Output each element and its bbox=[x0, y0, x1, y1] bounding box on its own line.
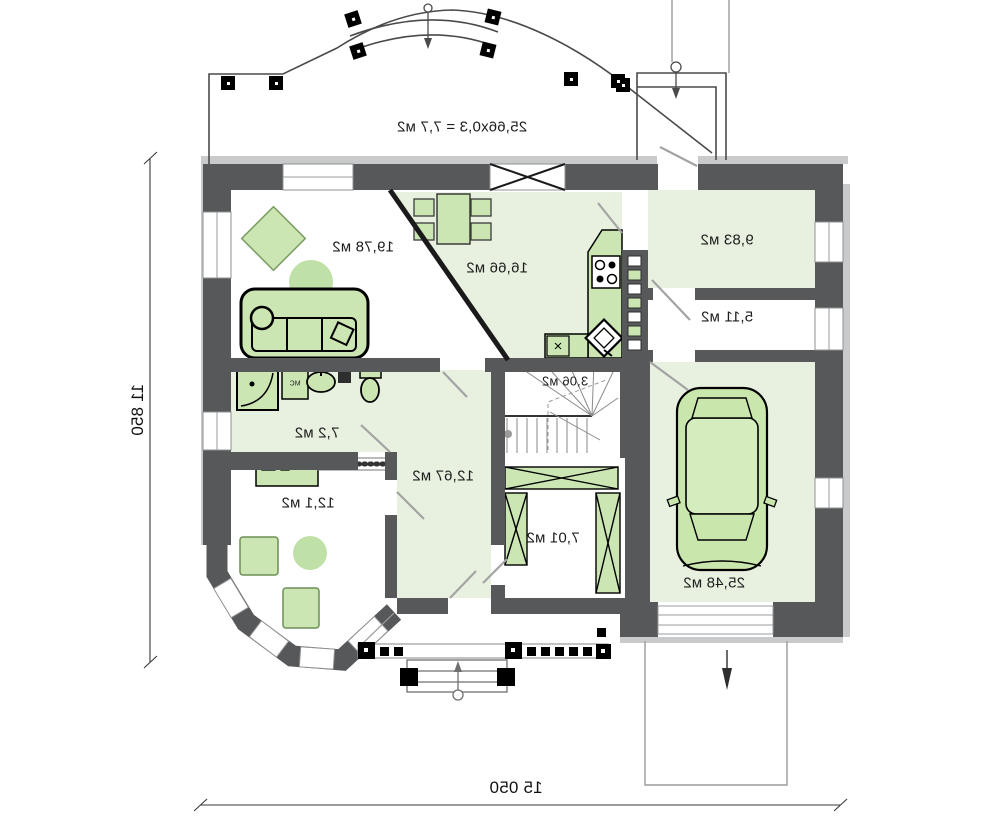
entrance-porch bbox=[358, 613, 611, 700]
room-label-entry-hall: 9,83 м2 bbox=[700, 232, 753, 249]
room-label-kitchen-dining: 16,66 м2 bbox=[466, 260, 528, 277]
sofa-icon bbox=[241, 289, 368, 358]
room-label-garage: 25,48 м2 bbox=[683, 575, 745, 592]
driveway bbox=[645, 641, 787, 785]
dimension-height-label: 11 850 bbox=[128, 384, 148, 436]
stove-icon bbox=[592, 256, 620, 288]
terrace-step-arc1 bbox=[350, 20, 498, 36]
room-label-bathroom: 7,2 м2 bbox=[295, 425, 340, 442]
room-label-hallway: 12,67 м2 bbox=[412, 468, 474, 485]
living-room-furniture bbox=[241, 207, 368, 358]
toilet-icon bbox=[360, 369, 381, 402]
terrace-step-arc2 bbox=[354, 35, 494, 50]
terrace-area-annotation: 25,66x0,3 = 7,7 м2 bbox=[397, 119, 527, 136]
terrace bbox=[209, 0, 729, 164]
office-chair-icon bbox=[240, 537, 278, 575]
closet-right bbox=[596, 493, 620, 593]
dishwasher-icon bbox=[547, 336, 569, 356]
office-chair2-icon bbox=[283, 588, 319, 628]
diamond-rug-icon bbox=[242, 207, 306, 271]
office-rug-icon bbox=[293, 536, 327, 570]
terrace-french-door bbox=[490, 164, 565, 190]
room-label-pantry: 5,11 м2 bbox=[701, 309, 753, 326]
bay-window-3 bbox=[299, 647, 334, 669]
entrance-steps bbox=[400, 660, 515, 700]
shower-icon bbox=[237, 369, 278, 410]
room-label-office: 12,1 м2 bbox=[281, 495, 334, 512]
dimension-width-label: 15 050 bbox=[489, 778, 542, 798]
side-porch bbox=[637, 0, 729, 160]
room-label-living-room: 19,78 м2 bbox=[332, 239, 394, 256]
closet-left bbox=[505, 493, 527, 565]
room-label-staircase: 3,06 м2 bbox=[542, 374, 588, 389]
washer-label: МС bbox=[289, 381, 300, 388]
terrace-entry-arrow bbox=[424, 4, 432, 49]
door-entrance-side bbox=[660, 147, 697, 166]
flue-blocks bbox=[628, 256, 641, 350]
terrace-columns bbox=[221, 9, 630, 92]
closet-top bbox=[505, 467, 618, 489]
office-furniture bbox=[240, 455, 388, 628]
garage-door bbox=[658, 606, 773, 634]
car-icon bbox=[667, 388, 776, 570]
room-label-utility: 7,01 м2 bbox=[526, 530, 579, 547]
bath-cabinet-icon bbox=[338, 371, 351, 383]
floor-plan-canvas: 19,78 м2 16,66 м2 9,83 м2 5,11 м2 3,06 м… bbox=[0, 0, 1000, 822]
